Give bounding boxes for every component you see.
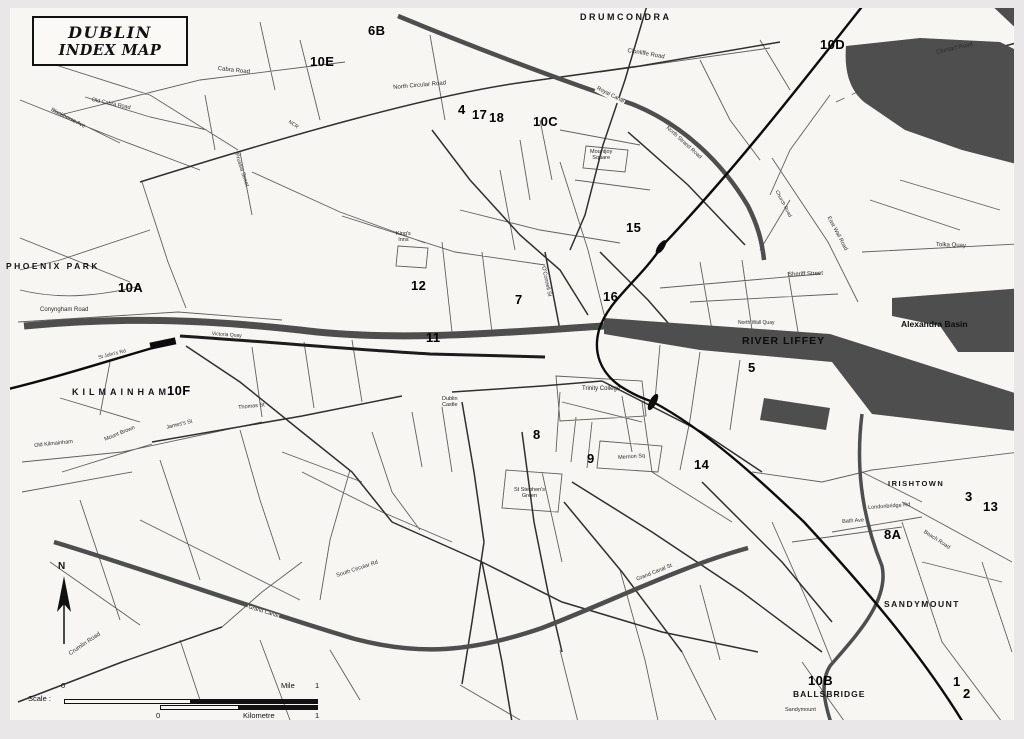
index-ref-10f: 10F (167, 384, 191, 398)
index-ref-4: 4 (458, 103, 466, 117)
district-label-ballsbridge: BALLSBRIDGE (793, 690, 865, 699)
index-ref-10c: 10C (533, 115, 558, 129)
index-ref-8a: 8A (884, 528, 901, 542)
index-ref-13: 13 (983, 500, 998, 514)
scanned-map-page: DUBLIN INDEX MAP 6B 10E 10D 4 17 18 10C … (0, 0, 1024, 739)
district-label-drumcondra: DRUMCONDRA (580, 13, 672, 23)
place-label-trinity-college: Trinity College (582, 386, 620, 392)
scale-km-one: 1 (315, 711, 319, 720)
place-label-mountjoy-square: Mountjoy Square (590, 150, 612, 162)
place-label-st-stephens-green: St Stephen's Green (514, 488, 545, 500)
map-title-line2: INDEX MAP (59, 42, 162, 59)
index-ref-5: 5 (748, 361, 756, 375)
index-ref-6b: 6B (368, 24, 385, 38)
water-label-alexandra-basin: Alexandra Basin (901, 320, 968, 329)
index-ref-17: 17 (472, 108, 487, 122)
district-label-sandymount: SANDYMOUNT (884, 600, 960, 609)
index-ref-10d: 10D (820, 38, 845, 52)
index-ref-12: 12 (411, 279, 426, 293)
index-ref-10a: 10A (118, 281, 143, 295)
district-label-irishtown: IRISHTOWN (888, 480, 944, 488)
scale-bar-km (160, 705, 318, 710)
road-label-tolka-quay: Tolka Quay (936, 242, 966, 250)
index-ref-7: 7 (515, 293, 523, 307)
index-ref-11: 11 (426, 331, 441, 345)
road-label-sandymount-small: Sandymount (785, 708, 816, 714)
index-ref-15: 15 (626, 221, 641, 235)
district-label-phoenix-park: PHOENIX PARK (6, 262, 100, 271)
road-label-sheriff-street: Sheriff Street (788, 271, 823, 279)
index-ref-14: 14 (694, 458, 709, 472)
index-ref-18: 18 (489, 111, 504, 125)
index-ref-10e: 10E (310, 55, 334, 69)
road-label-north-wall-quay: North Wall Quay (738, 321, 775, 326)
index-ref-1: 1 (953, 675, 961, 689)
dublin-map-canvas (0, 0, 1024, 739)
index-ref-16: 16 (603, 290, 618, 304)
scale-mile-zero: 0 (61, 681, 65, 690)
map-title-line1: DUBLIN (68, 23, 152, 42)
index-ref-8: 8 (533, 428, 541, 442)
water-label-river-liffey: RIVER LIFFEY (742, 336, 825, 347)
index-ref-10b: 10B (808, 674, 833, 688)
scale-bar-mile (64, 699, 318, 704)
scale-km-label: Kilometre (243, 711, 275, 720)
map-title-box: DUBLIN INDEX MAP (32, 16, 188, 66)
place-label-dublin-castle: Dublin Castle (442, 397, 458, 409)
scale-km-zero: 0 (156, 711, 160, 720)
place-label-kings-inns: King's Inns (396, 232, 411, 244)
district-label-kilmainham: KILMAINHAM (72, 388, 170, 398)
index-ref-3: 3 (965, 490, 973, 504)
compass-north-label: N (58, 562, 65, 573)
index-ref-2: 2 (963, 687, 971, 701)
scale-mile-label: Mile (281, 681, 295, 690)
scale-mile-one: 1 (315, 681, 319, 690)
index-ref-9: 9 (587, 452, 595, 466)
scale-label: Scale : (28, 694, 51, 703)
road-label-conyngham-road: Conyngham Road (40, 307, 88, 313)
